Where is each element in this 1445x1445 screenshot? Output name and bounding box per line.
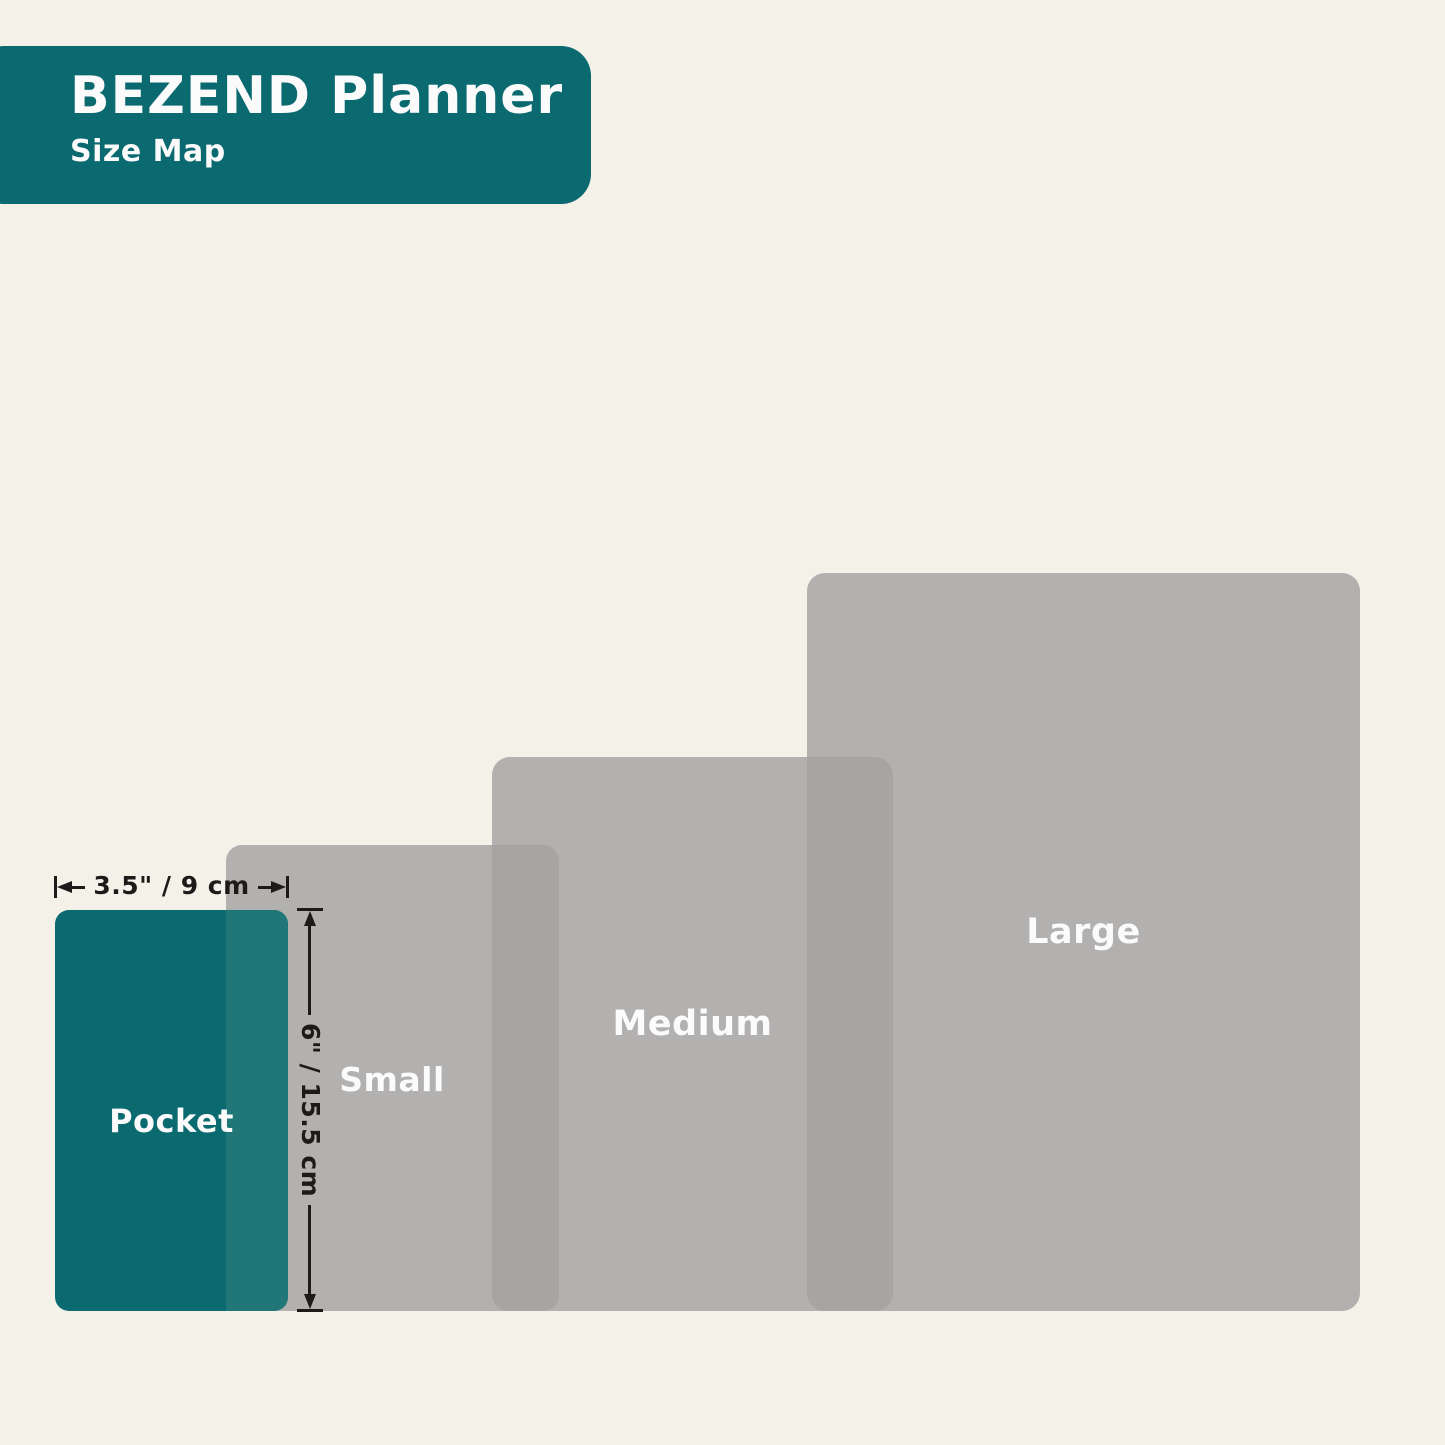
width-dim-left-line	[72, 886, 85, 889]
header-badge: BEZEND Planner Size Map	[0, 46, 591, 204]
width-dim-right-tick	[286, 876, 289, 898]
page-subtitle: Size Map	[70, 134, 591, 169]
size-label-pocket: Pocket	[55, 1102, 288, 1140]
height-dim-top-line	[308, 926, 311, 1015]
height-dim-bottom-line	[308, 1205, 311, 1294]
width-dim-right-arrowhead-icon	[271, 881, 286, 893]
width-dimension-annotation: 3.5" / 9 cm	[54, 873, 289, 901]
page-title: BEZEND Planner	[70, 68, 591, 125]
height-dim-down-arrowhead-icon	[304, 1294, 316, 1309]
size-rect-pocket: Pocket	[55, 910, 288, 1311]
width-dim-left-arrowhead-icon	[57, 881, 72, 893]
height-dim-bottom-tick	[297, 1309, 323, 1312]
overlap-band-medium-large	[807, 757, 893, 1311]
height-dimension-annotation: 6" / 15.5 cm	[296, 908, 323, 1312]
width-dimension-label: 3.5" / 9 cm	[85, 871, 257, 900]
width-dim-right-line	[258, 886, 271, 889]
height-dimension-label: 6" / 15.5 cm	[296, 1015, 325, 1205]
overlap-band-small-medium	[492, 845, 559, 1311]
height-dim-up-arrowhead-icon	[304, 911, 316, 926]
size-map-infographic: BEZEND Planner Size Map Large Medium Sma…	[0, 0, 1445, 1445]
